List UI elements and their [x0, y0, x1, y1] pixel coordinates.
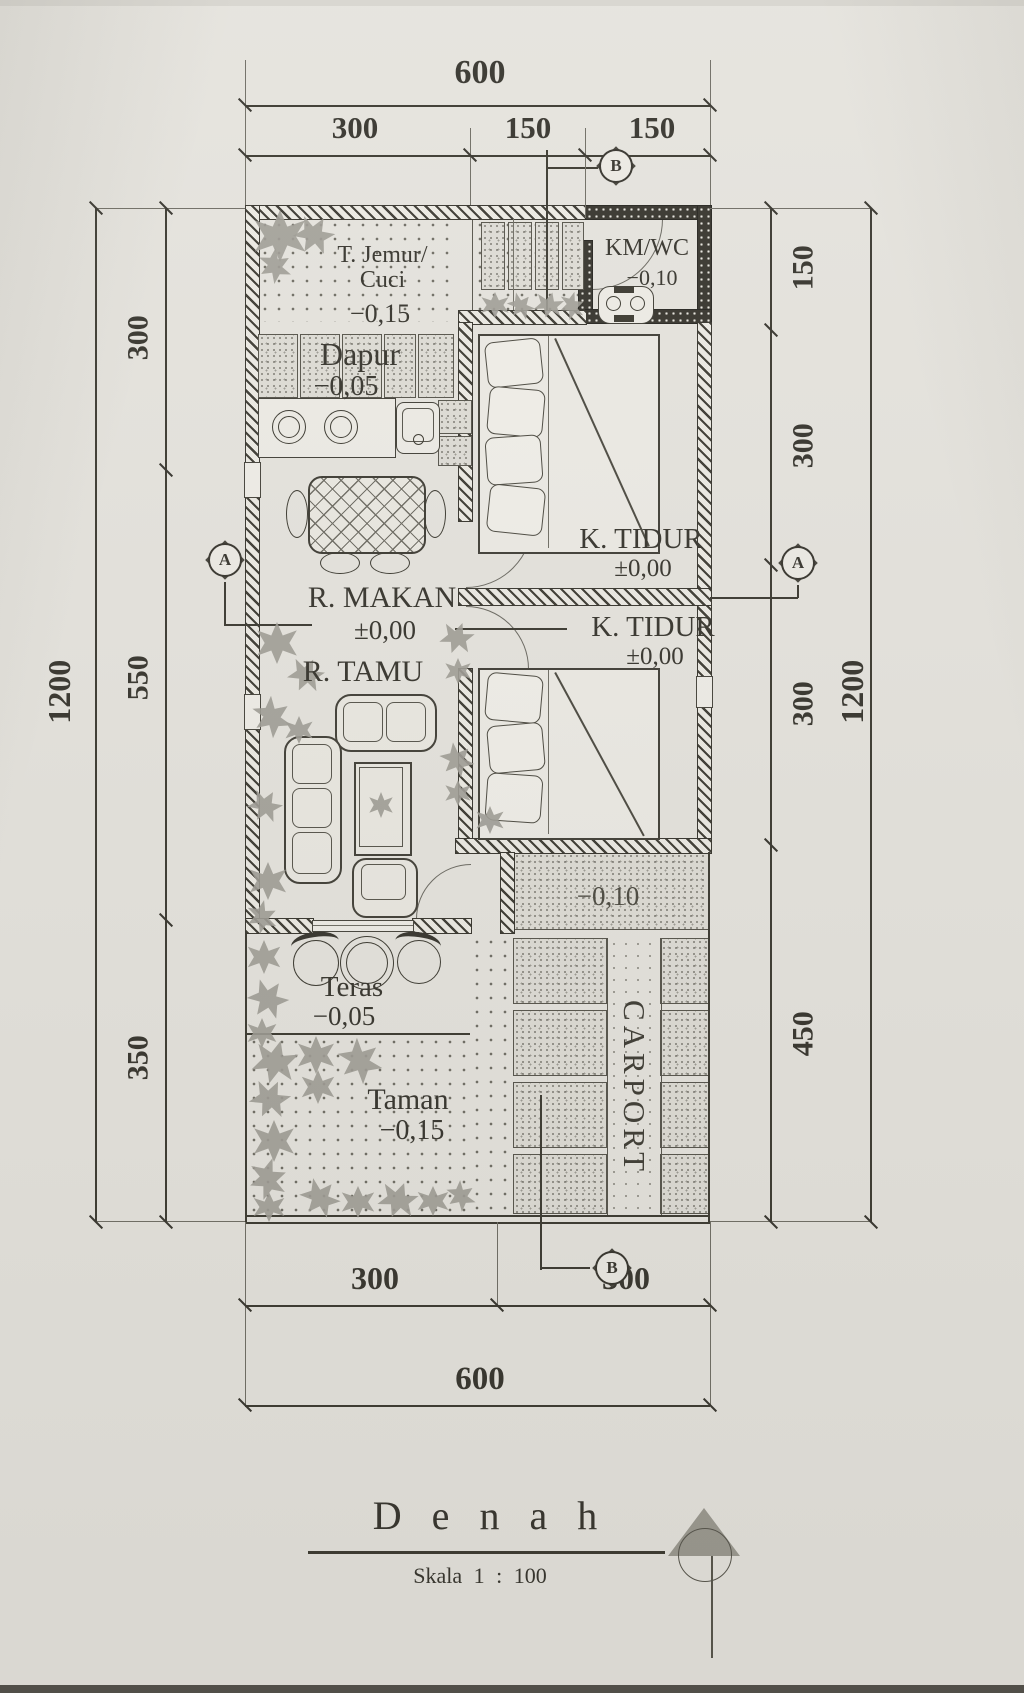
room-label-teras: Teras — [292, 972, 412, 1002]
stove-burner-inner — [330, 416, 352, 438]
dim-ext — [497, 1222, 498, 1306]
sheet-title: D e n a h — [340, 1495, 640, 1537]
section-marker-a-right: A — [776, 541, 820, 585]
pillow — [484, 337, 545, 389]
dim-ext — [245, 1222, 246, 1405]
wall-between-bedrooms — [458, 588, 712, 606]
dim-line-right-total — [870, 208, 872, 1222]
dim-ext — [710, 60, 711, 205]
dim-left-total: 1200 — [43, 647, 77, 737]
north-arrow-circle — [678, 1528, 732, 1582]
kitchen-cabinet — [438, 436, 472, 466]
section-b-cut-line2 — [513, 218, 514, 310]
dining-table — [308, 476, 426, 554]
pillow — [484, 672, 544, 725]
room-label-dapur: Dapur — [290, 338, 430, 372]
dim-line-top-seg — [245, 155, 710, 157]
plan-front-edge — [245, 1215, 710, 1217]
wall-kmwc-right — [697, 205, 712, 324]
wall-top — [245, 205, 587, 220]
photo-edge-bottom — [0, 1685, 1024, 1693]
sheet-scale: Skala 1 : 100 — [350, 1564, 610, 1587]
room-level-teras: −0,05 — [284, 1002, 404, 1030]
dim-ext — [585, 128, 586, 218]
section-b-cut-line — [546, 150, 548, 310]
sofa-cushion — [292, 744, 332, 784]
section-marker-b-bottom: B — [590, 1246, 634, 1290]
teras-bottom-edge — [245, 1033, 470, 1035]
dim-bottom-total: 600 — [420, 1362, 540, 1397]
dim-bottom-seg1: 300 — [315, 1262, 435, 1296]
room-level-taman: −0,15 — [342, 1116, 482, 1145]
section-a-line — [224, 624, 312, 626]
dim-right-seg3: 300 — [787, 659, 819, 749]
dim-ext — [96, 1221, 245, 1222]
section-marker-a-left: A — [203, 538, 247, 582]
section-a-line — [710, 597, 798, 599]
section-marker-b-top: B — [594, 144, 638, 188]
section-b-cut-line-bottom — [540, 1095, 542, 1270]
room-label-taman: Taman — [338, 1084, 478, 1116]
room-level-kmwc: −0,10 — [600, 266, 704, 289]
dim-ext — [710, 1222, 711, 1405]
dining-chair — [286, 490, 308, 538]
kitchen-cabinet — [438, 400, 472, 434]
dim-ext — [470, 128, 471, 205]
room-level-tidur1: ±0,00 — [578, 556, 708, 582]
dim-ext — [710, 1221, 870, 1222]
room-label-carport: CARPORT — [598, 968, 670, 1208]
dim-line-right-seg — [770, 208, 772, 1222]
dim-right-seg2: 300 — [787, 401, 819, 491]
room-label-tidur2: K. TIDUR — [578, 612, 728, 642]
carport-slab — [513, 938, 607, 1004]
bed-1-divider — [548, 336, 549, 548]
photo-edge-top — [0, 0, 1024, 6]
wardrobe-unit — [508, 222, 532, 290]
dining-chair — [320, 552, 360, 574]
pillow — [486, 386, 546, 439]
room-level-makan: ±0,00 — [300, 616, 470, 644]
section-a-leader — [224, 582, 226, 625]
room-level-carport: −0,10 — [528, 882, 688, 910]
dim-top-seg1: 300 — [300, 112, 410, 145]
dim-line-bottom-seg — [245, 1305, 710, 1307]
sink-drain — [413, 434, 424, 445]
dim-line-bottom-total — [245, 1405, 710, 1407]
taman-left-edge — [245, 932, 247, 1222]
room-label-kmwc: KM/WC — [590, 236, 704, 261]
floor-plan-sheet: B B A A 600 300 150 150 1200 300 550 350 — [0, 0, 1024, 1693]
toilet-detail — [606, 296, 621, 311]
window-sill — [244, 462, 261, 498]
dining-chair — [424, 490, 446, 538]
wall-stub — [500, 852, 515, 934]
dim-top-seg3: 150 — [602, 112, 702, 145]
toilet-detail — [630, 296, 645, 311]
room-label-tidur1: K. TIDUR — [566, 524, 716, 554]
room-label-makan: R. MAKAN — [292, 582, 472, 614]
wall-left — [245, 205, 260, 934]
pillow — [486, 722, 546, 775]
dim-right-seg1: 150 — [787, 223, 819, 313]
pillow — [486, 483, 547, 537]
pillow — [484, 434, 543, 486]
sofa-cushion — [292, 788, 332, 828]
plan-front-edge2 — [245, 1222, 710, 1224]
dim-left-seg3: 350 — [122, 1013, 154, 1103]
section-b-leader — [546, 167, 598, 169]
room-level-tidur2: ±0,00 — [590, 644, 720, 670]
carport-slab — [513, 1010, 607, 1076]
toilet-tank — [614, 315, 634, 322]
plant — [246, 940, 282, 974]
room-label-tamu: R. TAMU — [283, 656, 443, 688]
title-block-divider — [711, 1556, 713, 1658]
stove-burner-inner — [278, 416, 300, 438]
wardrobe-unit — [562, 222, 584, 290]
bed-2-divider — [548, 670, 549, 834]
dim-line-left-total — [95, 208, 97, 1222]
wall-kmwc-top — [585, 205, 712, 220]
dim-left-seg2: 550 — [122, 633, 154, 723]
window-sill — [696, 676, 713, 708]
armchair-cushion — [361, 864, 406, 900]
dining-chair — [370, 552, 410, 574]
dim-top-seg2: 150 — [478, 112, 578, 145]
dim-ext — [710, 208, 870, 209]
plant — [434, 737, 481, 784]
section-a-line — [455, 628, 567, 630]
room-label-jemur: T. Jemur/Cuci — [310, 243, 455, 293]
sofa-cushion — [386, 702, 426, 742]
wardrobe-unit — [481, 222, 505, 290]
room-level-dapur: −0,05 — [276, 372, 416, 401]
dim-ext — [245, 60, 246, 205]
wall-carport-top — [455, 838, 712, 854]
dim-ext — [96, 208, 245, 209]
dim-line-left-seg — [165, 208, 167, 1222]
dim-left-seg1: 300 — [122, 293, 154, 383]
sofa-cushion — [292, 832, 332, 874]
room-level-jemur: −0,15 — [310, 300, 450, 327]
window-sill — [312, 920, 414, 932]
carport-slab — [513, 1082, 607, 1148]
carport-slab — [513, 1154, 607, 1214]
title-underline — [308, 1551, 665, 1554]
dim-right-total: 1200 — [836, 647, 870, 737]
taman-edge-pattern — [470, 935, 513, 1215]
carport-right-edge — [708, 852, 710, 1222]
dim-line-top-total — [245, 105, 710, 107]
dim-top-total: 600 — [420, 55, 540, 91]
sofa-cushion — [343, 702, 383, 742]
dim-right-seg4: 450 — [787, 989, 819, 1079]
